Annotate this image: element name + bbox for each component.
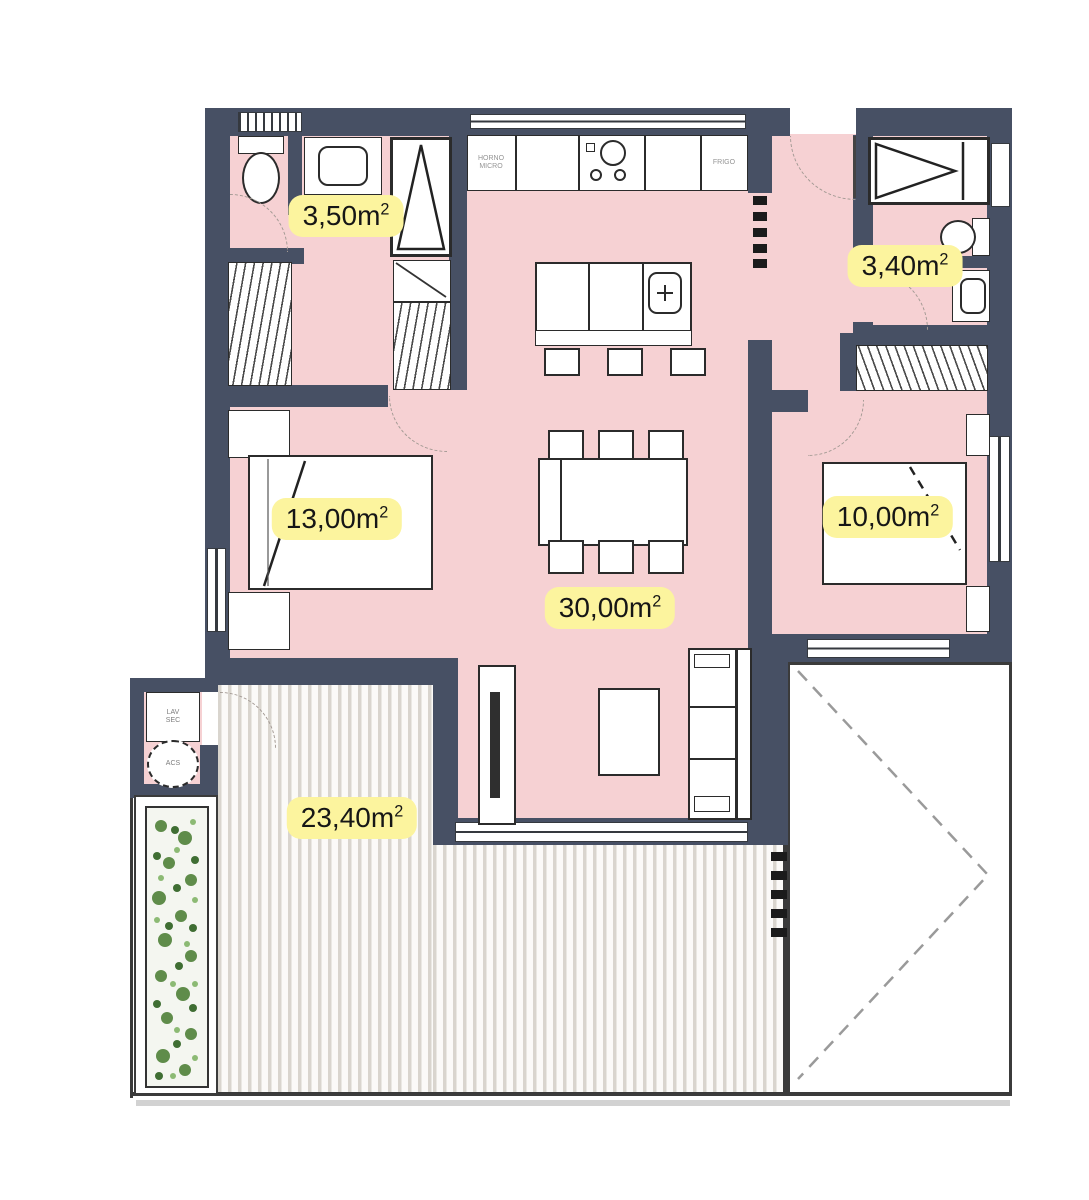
area-label-bedroom2: 10,00m2 <box>823 496 953 538</box>
water-heater-label: ACS <box>147 740 199 788</box>
sofa-backrest-line <box>735 649 738 819</box>
riser-dash-2 <box>753 212 767 221</box>
closet-shelf-box <box>393 260 451 302</box>
wall-patio-west <box>772 662 788 845</box>
island-bar-ledge <box>535 330 692 346</box>
oven-label-line1: HORNO <box>478 155 504 163</box>
area-sup: 2 <box>394 803 403 821</box>
area-sup: 2 <box>930 502 939 520</box>
nightstand-bedroom1-top <box>228 410 290 458</box>
area-sup: 2 <box>939 251 948 269</box>
shower1-tray <box>390 137 452 257</box>
patio-area <box>787 662 1012 1095</box>
sofa-cushion-line-1 <box>689 706 735 708</box>
dining-chair-bottom-1 <box>548 540 584 574</box>
boundary-dash-3 <box>771 890 787 899</box>
sink1-basin <box>318 146 368 186</box>
window-kitchen-top <box>470 114 746 129</box>
window-bathroom1-top <box>238 112 302 132</box>
area-sup: 2 <box>380 201 389 219</box>
area-value: 13,00m <box>286 503 379 534</box>
dining-table-leaf-line <box>560 459 562 545</box>
outer-border-bottom <box>130 1092 1012 1096</box>
floor-plan: HORNO MICRO FRIGO <box>0 0 1089 1200</box>
riser-dash-3 <box>753 228 767 237</box>
bar-stool-2 <box>607 348 643 376</box>
sink2-basin <box>960 278 986 314</box>
area-label-bathroom1: 3,50m2 <box>289 195 404 237</box>
wall-wardrobe2-west-stub <box>840 333 856 391</box>
washer-label-line1: LAV <box>167 709 180 717</box>
patio-chevron-marks <box>790 665 1009 1092</box>
dining-chair-bottom-2 <box>598 540 634 574</box>
sofa-armrest-top <box>694 654 730 668</box>
area-label-living: 30,00m2 <box>545 587 675 629</box>
water-heater-label-text: ACS <box>166 760 180 768</box>
kitchen-sink-circle <box>600 140 626 166</box>
riser-dash-1 <box>753 196 767 205</box>
stove-burner-2 <box>614 169 626 181</box>
wall-bedroom1-top <box>228 385 388 407</box>
riser-dash-4 <box>753 244 767 253</box>
drop-shadow <box>136 1100 1010 1106</box>
island-divider-1 <box>588 263 590 331</box>
bar-stool-3 <box>670 348 706 376</box>
window-bedroom2-right <box>989 436 1010 562</box>
closet-diagonal-mark <box>394 261 448 299</box>
oven-label: HORNO MICRO <box>468 146 514 180</box>
wall-utility-east-lower <box>200 745 218 798</box>
nightstand-bedroom2-bottom <box>966 586 990 632</box>
wardrobe-hall-column <box>393 302 451 390</box>
shower2-drain-mark <box>871 140 987 202</box>
area-value: 23,40m <box>301 802 394 833</box>
counter-divider-2 <box>578 136 580 190</box>
stove-knob <box>586 143 595 152</box>
island-divider-2 <box>642 263 644 331</box>
boundary-dash-1 <box>771 852 787 861</box>
area-label-terrace: 23,40m2 <box>287 797 417 839</box>
area-label-bathroom2: 3,40m2 <box>848 245 963 287</box>
shower2-tray <box>868 137 990 205</box>
sliding-door-living-terrace <box>455 822 748 842</box>
boundary-dash-5 <box>771 928 787 937</box>
nightstand-bedroom1-bottom <box>228 592 290 650</box>
counter-divider-3 <box>644 136 646 190</box>
window-bedroom2-bottom <box>807 639 950 658</box>
nightstand-bedroom2-top <box>966 414 990 456</box>
stove-burner-1 <box>590 169 602 181</box>
area-value: 3,50m <box>303 200 381 231</box>
riser-dash-5 <box>753 259 767 268</box>
counter-divider-1 <box>515 136 517 190</box>
boundary-dash-4 <box>771 909 787 918</box>
wall-bedroom2-top-stub <box>772 390 808 412</box>
planter-plants <box>145 806 209 1088</box>
sofa <box>688 648 752 820</box>
bar-stool-1 <box>544 348 580 376</box>
wall-bedroom1-bottom <box>205 658 458 685</box>
window-bedroom1-left <box>207 548 226 632</box>
terrace-patio-divider <box>783 845 787 1094</box>
tv-screen <box>490 692 500 798</box>
entrance-door-leaf <box>853 136 856 198</box>
planter-box <box>134 795 218 1095</box>
area-value: 30,00m <box>559 592 652 623</box>
washer-label: LAV SEC <box>146 692 200 742</box>
area-value: 10,00m <box>837 501 930 532</box>
wall-living-west <box>433 658 458 845</box>
area-value: 3,40m <box>862 250 940 281</box>
wardrobe-hall-left <box>228 262 292 386</box>
coffee-table <box>598 688 660 776</box>
island-faucet-v <box>664 285 666 301</box>
sofa-armrest-bottom <box>694 796 730 812</box>
fridge-label-text: FRIGO <box>713 159 735 167</box>
area-sup: 2 <box>379 504 388 522</box>
window-bathroom2-right <box>991 143 1010 207</box>
area-sup: 2 <box>652 593 661 611</box>
fridge-label: FRIGO <box>702 152 746 174</box>
dining-chair-bottom-3 <box>648 540 684 574</box>
boundary-dash-2 <box>771 871 787 880</box>
oven-label-line2: MICRO <box>479 163 502 171</box>
shower1-drain-mark <box>393 140 449 254</box>
sofa-cushion-line-2 <box>689 758 735 760</box>
terrace-deck-bottom <box>433 845 785 1092</box>
wardrobe-bedroom2 <box>856 345 988 391</box>
washer-label-line2: SEC <box>166 717 180 725</box>
wall-utility-west <box>130 678 144 798</box>
area-label-bedroom1: 13,00m2 <box>272 498 402 540</box>
wall-kitchen-east <box>748 108 772 193</box>
